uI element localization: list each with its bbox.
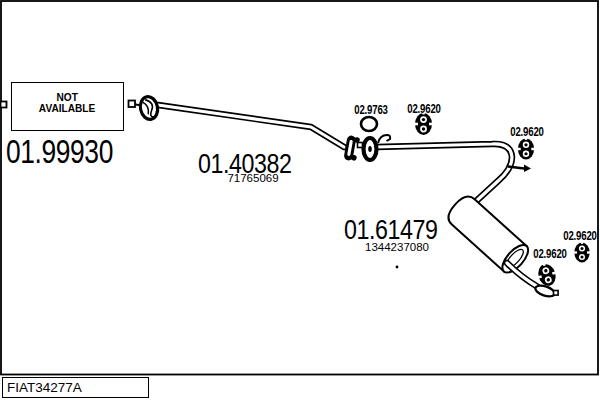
flex-coupling-icon: [138, 95, 159, 121]
label-gasket-ring: 02.9763: [349, 104, 394, 116]
pipe-connector-square-icon: [554, 291, 559, 296]
tail-pipe: [507, 263, 538, 287]
diagram-code: FIAT34277A: [3, 381, 82, 395]
pipe-connector-square-icon: [358, 143, 363, 148]
exhaust-parts-diagram-page: NOT AVAILABLE 01.99930 01.40382 71765069…: [0, 0, 600, 400]
part-number-front-pipe: 01.99930: [6, 135, 113, 168]
exhaust-diagram: [0, 0, 600, 400]
tail-pipe-tip-icon: [534, 284, 556, 299]
muffler: [444, 192, 533, 277]
label-hanger-tail-left: 02.9620: [528, 248, 573, 260]
drawing-border: [1, 1, 598, 375]
oem-number-center-pipe: 71765069: [225, 173, 281, 185]
label-hanger-mid: 02.9620: [402, 103, 447, 115]
flange-donut-icon: [364, 138, 377, 160]
reference-dot: [396, 266, 399, 269]
diagram-code-box: FIAT34277A: [2, 377, 149, 398]
rubber-hanger-icon: [573, 242, 591, 263]
flange-joint-icon: [343, 135, 360, 162]
rubber-hanger-icon: [517, 138, 536, 160]
rear-pipe: [377, 144, 512, 204]
pipe-connector-square-icon: [1, 102, 7, 108]
part-number-muffler: 01.61479: [344, 217, 437, 244]
label-hanger-tail-right: 02.9620: [557, 230, 600, 242]
not-available-line2: AVAILABLE: [39, 103, 95, 114]
center-pipe: [158, 105, 344, 147]
gasket-ring-icon: [361, 117, 377, 131]
pipe-connector-square-icon: [129, 101, 136, 108]
oem-number-muffler: 1344237080: [363, 242, 431, 254]
label-hanger-bend: 02.9620: [504, 126, 549, 138]
not-available-box: NOT AVAILABLE: [11, 82, 124, 131]
hook-bracket-icon: [378, 135, 390, 143]
